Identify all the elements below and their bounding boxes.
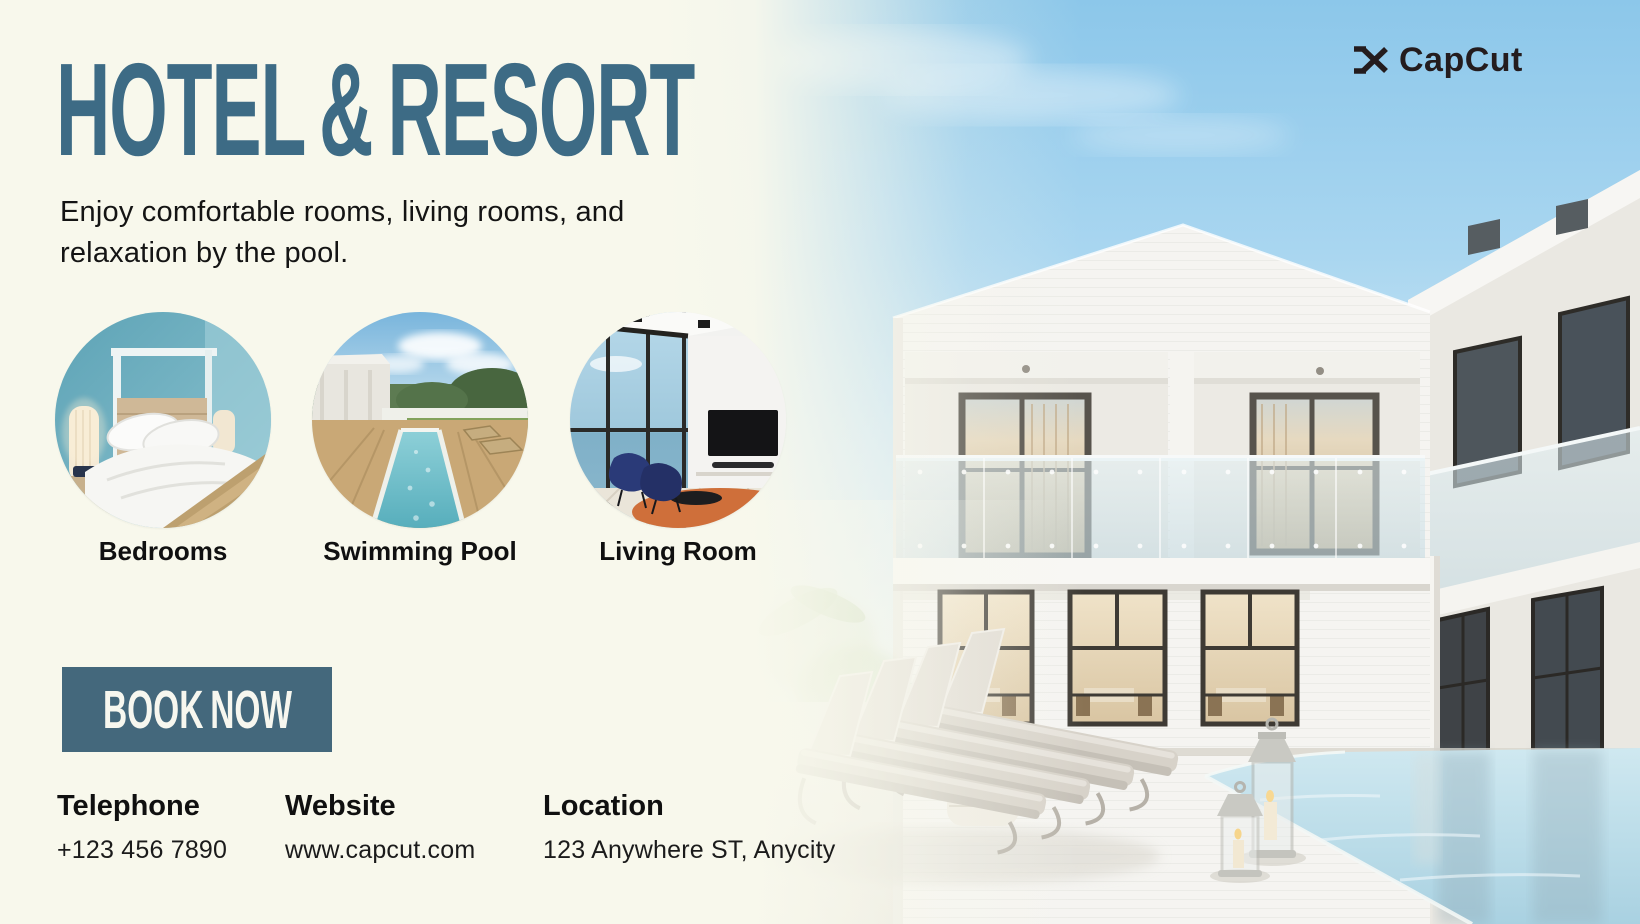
website-label: Website [285, 790, 475, 823]
contact-location: Location 123 Anywhere ST, Anycity [543, 790, 835, 865]
page-subtitle: Enjoy comfortable rooms, living rooms, a… [60, 192, 715, 274]
page-title: HOTEL & RESORT [56, 44, 694, 176]
capcut-icon [1350, 40, 1390, 80]
bedrooms-label: Bedrooms [55, 536, 271, 567]
telephone-value: +123 456 7890 [57, 836, 227, 865]
living-room-label: Living Room [570, 536, 786, 567]
book-now-label: BOOK NOW [102, 679, 291, 741]
living-room-image [570, 312, 786, 528]
contact-website: Website www.capcut.com [285, 790, 475, 865]
swimming-pool-label: Swimming Pool [312, 536, 528, 567]
contact-telephone: Telephone +123 456 7890 [57, 790, 227, 865]
location-label: Location [543, 790, 835, 823]
website-value: www.capcut.com [285, 836, 475, 865]
balcony-glass-railing [896, 455, 1425, 560]
swimming-pool-image [312, 312, 528, 528]
flyer-canvas: CapCut HOTEL & RESORT Enjoy comfortable … [0, 0, 1640, 924]
location-value: 123 Anywhere ST, Anycity [543, 836, 835, 865]
telephone-label: Telephone [57, 790, 227, 823]
book-now-button[interactable]: BOOK NOW [62, 667, 332, 752]
bedrooms-image [55, 312, 271, 528]
capcut-logo: CapCut [1350, 40, 1523, 80]
capcut-wordmark: CapCut [1399, 41, 1523, 80]
